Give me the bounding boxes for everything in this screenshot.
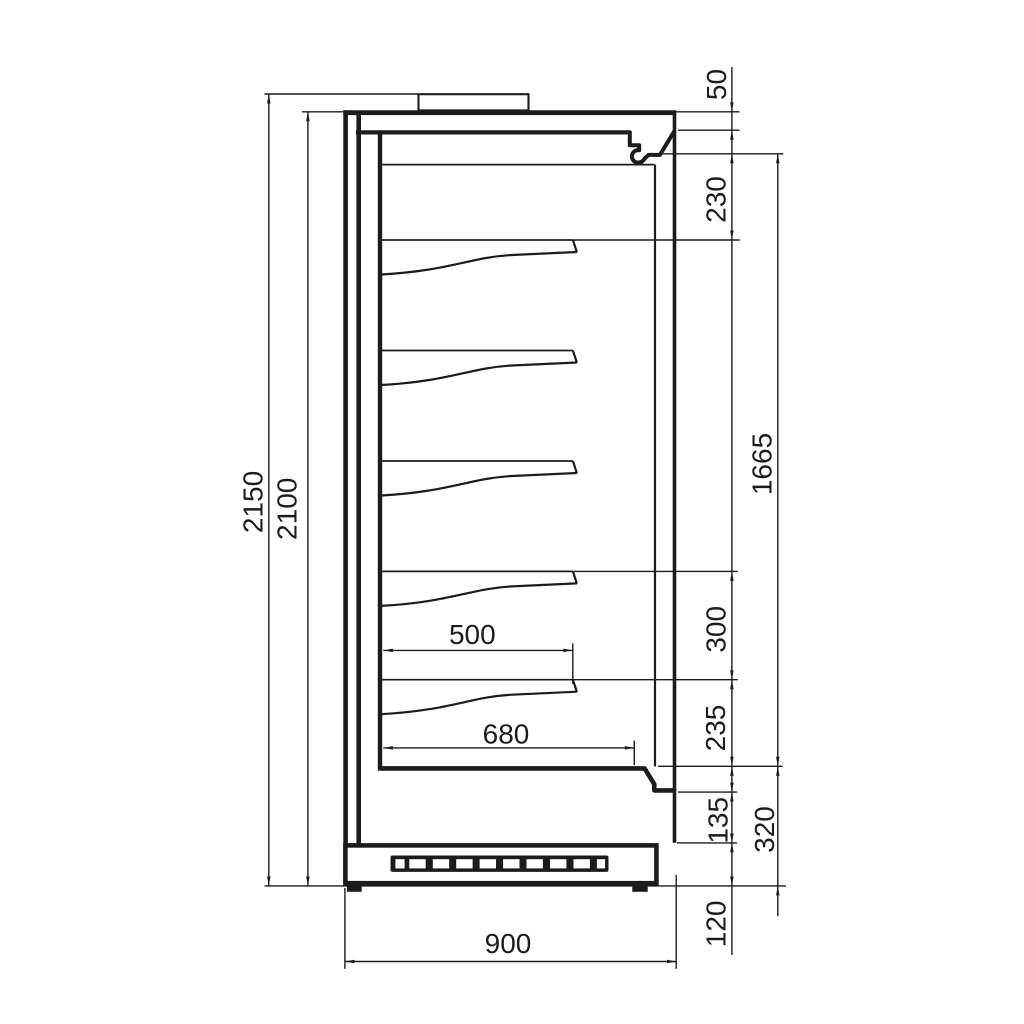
- svg-text:50: 50: [701, 69, 732, 100]
- svg-text:900: 900: [485, 928, 532, 959]
- svg-text:235: 235: [700, 705, 731, 752]
- svg-text:500: 500: [449, 619, 496, 650]
- svg-text:2150: 2150: [238, 471, 269, 533]
- svg-text:1665: 1665: [747, 433, 778, 495]
- svg-text:230: 230: [700, 176, 731, 223]
- svg-text:120: 120: [701, 901, 732, 948]
- svg-text:680: 680: [483, 719, 530, 750]
- svg-text:2100: 2100: [271, 478, 302, 540]
- svg-text:135: 135: [703, 797, 734, 844]
- svg-text:300: 300: [701, 606, 732, 653]
- svg-text:320: 320: [749, 806, 780, 853]
